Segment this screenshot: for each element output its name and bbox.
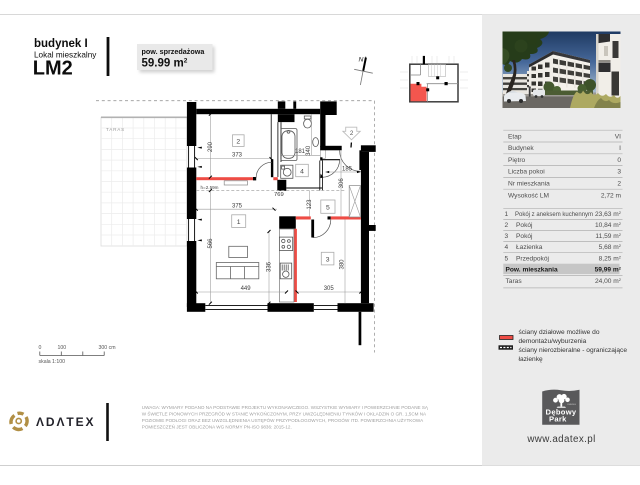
svg-text:Łazienka: Łazienka [516, 244, 543, 251]
svg-text:375: 375 [232, 203, 243, 209]
svg-text:pow. sprzedażowa: pow. sprzedażowa [142, 47, 206, 56]
svg-text:2: 2 [617, 181, 621, 188]
svg-text:2,72 m: 2,72 m [601, 192, 622, 199]
svg-text:1: 1 [505, 211, 509, 218]
svg-text:VI: VI [615, 133, 621, 140]
svg-text:306: 306 [339, 178, 345, 189]
svg-text:4: 4 [300, 168, 304, 175]
svg-text:0: 0 [39, 345, 42, 351]
svg-text:2: 2 [505, 222, 509, 229]
svg-text:I: I [619, 145, 621, 152]
svg-text:TARAS: TARAS [106, 127, 125, 132]
svg-text:5: 5 [326, 205, 330, 212]
svg-text:3: 3 [326, 257, 330, 264]
svg-text:POMIESZCZEŃ JEST OBLICZONA WG: POMIESZCZEŃ JEST OBLICZONA WG NORMY PN-I… [142, 424, 292, 430]
svg-text:185: 185 [342, 166, 353, 172]
svg-text:ΛDΛTEX: ΛDΛTEX [36, 415, 95, 429]
svg-text:10,84 m2: 10,84 m2 [595, 221, 622, 229]
svg-text:59,99 m2: 59,99 m2 [595, 266, 622, 274]
svg-text:300 cm: 300 cm [99, 345, 116, 351]
svg-text:0: 0 [617, 157, 621, 164]
svg-text:Park: Park [549, 414, 567, 423]
svg-text:UWAGA: WYMIARY PODANO NA PODST: UWAGA: WYMIARY PODANO NA PODSTAWIE PROJE… [142, 405, 429, 410]
svg-text:24,00 m2: 24,00 m2 [595, 277, 622, 285]
svg-text:1: 1 [237, 219, 241, 226]
svg-text:373: 373 [232, 152, 243, 158]
svg-text:4: 4 [505, 244, 509, 251]
svg-text:Etap: Etap [508, 133, 522, 140]
svg-text:LM2: LM2 [33, 57, 73, 79]
svg-text:demontażu/wyburzenia: demontażu/wyburzenia [519, 338, 587, 345]
svg-text:5: 5 [505, 255, 509, 262]
svg-text:Pow. mieszkania: Pow. mieszkania [506, 267, 558, 274]
svg-text:3: 3 [505, 233, 509, 240]
svg-text:59.99 m2: 59.99 m2 [142, 58, 188, 70]
svg-text:181: 181 [295, 149, 306, 155]
svg-text:Wysokość LM: Wysokość LM [508, 192, 549, 199]
svg-text:23,63 m2: 23,63 m2 [595, 210, 622, 218]
svg-text:budynek I: budynek I [34, 38, 88, 50]
svg-text:łazienkę: łazienkę [519, 356, 544, 363]
svg-text:Pokój: Pokój [516, 222, 533, 229]
svg-text:Pokój: Pokój [516, 233, 533, 240]
svg-text:123: 123 [307, 199, 313, 210]
svg-text:380: 380 [339, 259, 345, 270]
svg-text:Pokój z aneksem kuchennym: Pokój z aneksem kuchennym [515, 212, 593, 218]
svg-text:OSIEDLE: OSIEDLE [567, 404, 577, 406]
svg-text:N: N [359, 57, 364, 64]
svg-text:336: 336 [266, 261, 272, 272]
svg-text:Liczba pokoi: Liczba pokoi [508, 169, 545, 176]
svg-text:290: 290 [208, 141, 214, 152]
svg-text:www.adatex.pl: www.adatex.pl [526, 434, 595, 445]
svg-text:449: 449 [241, 286, 252, 292]
svg-text:769: 769 [274, 192, 284, 198]
svg-text:2: 2 [236, 138, 240, 145]
svg-text:3: 3 [617, 169, 621, 176]
svg-text:W ŚWIETLE PIONOWYCH PRZEGRÓD W: W ŚWIETLE PIONOWYCH PRZEGRÓD W STANIE WY… [142, 410, 427, 417]
svg-text:skala 1:100: skala 1:100 [39, 359, 66, 365]
svg-text:566: 566 [208, 238, 214, 249]
svg-text:100: 100 [58, 345, 67, 351]
svg-text:h=2.59m: h=2.59m [201, 185, 219, 190]
svg-text:340: 340 [306, 145, 312, 156]
svg-text:11,59 m2: 11,59 m2 [595, 232, 621, 240]
svg-text:Nr mieszkania: Nr mieszkania [508, 181, 550, 188]
svg-text:Piętro: Piętro [508, 157, 526, 164]
svg-text:POZIOMIE PODŁOGI ORAZ BEZ UWZG: POZIOMIE PODŁOGI ORAZ BEZ UWZGLĘDNIENIA … [142, 417, 424, 423]
svg-text:ściany nierozbieralne - ograni: ściany nierozbieralne - ograniczające [519, 347, 628, 354]
svg-text:Przedpokój: Przedpokój [516, 255, 550, 262]
svg-text:305: 305 [324, 286, 335, 292]
svg-text:ściany działowe możliwe do: ściany działowe możliwe do [519, 329, 600, 336]
svg-text:2: 2 [350, 130, 354, 137]
svg-text:Taras: Taras [506, 278, 523, 285]
svg-text:Budynek: Budynek [508, 145, 534, 152]
svg-text:5,68 m2: 5,68 m2 [599, 243, 622, 251]
svg-text:8,25 m2: 8,25 m2 [599, 254, 622, 262]
